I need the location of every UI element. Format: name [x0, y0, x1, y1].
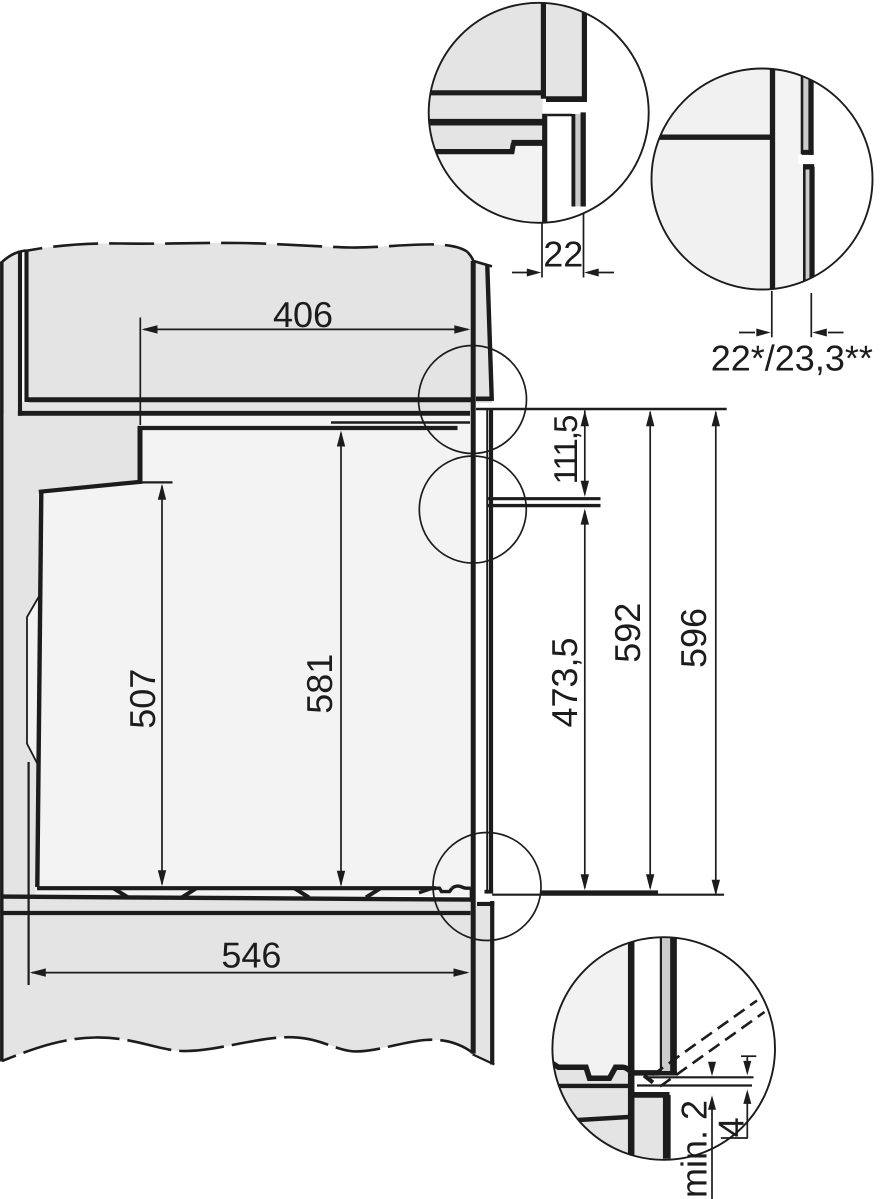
svg-text:22*/23,3**: 22*/23,3** [711, 338, 873, 379]
svg-text:596: 596 [673, 608, 714, 668]
svg-text:22: 22 [543, 234, 583, 275]
svg-text:min. 2: min. 2 [674, 1100, 715, 1198]
svg-text:111,5: 111,5 [547, 416, 584, 484]
svg-text:406: 406 [273, 294, 333, 335]
svg-text:507: 507 [122, 669, 163, 729]
svg-text:473,5: 473,5 [544, 637, 585, 727]
svg-text:546: 546 [221, 935, 281, 976]
svg-text:581: 581 [299, 654, 340, 714]
svg-text:592: 592 [607, 603, 648, 663]
svg-text:4: 4 [711, 1117, 752, 1137]
